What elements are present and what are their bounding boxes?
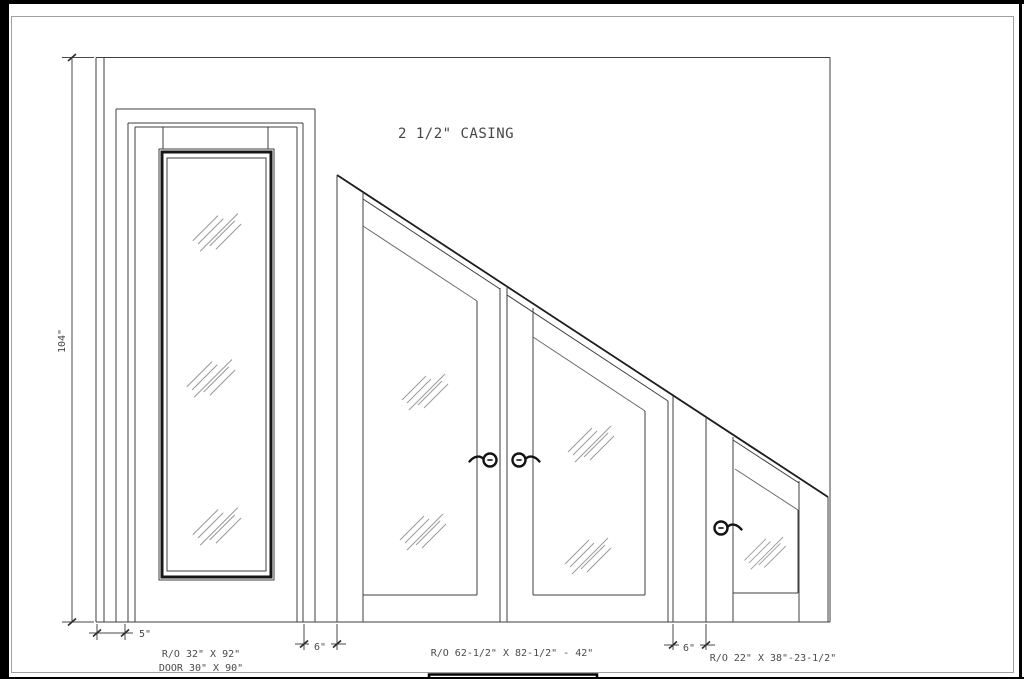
tall-door-size-label: DOOR 30" X 90" xyxy=(159,663,243,674)
small-door-ro-label: R/O 22" X 38"-23-1/2" xyxy=(710,653,836,664)
casing-offset-label: 5" xyxy=(139,629,151,640)
height-dimension: 104" xyxy=(57,54,94,626)
tall-door-glass-panel xyxy=(159,149,274,580)
tall-door-unit xyxy=(116,109,315,622)
small-door-handle xyxy=(715,522,742,535)
tall-door-casing xyxy=(116,109,315,622)
gap-left-label: 6" xyxy=(314,642,326,653)
casing-offset-dimension: 5" xyxy=(89,624,151,640)
elevation-drawing: 104" 5" 6" 6" 2 1/2" CASING R/O 32" X 92… xyxy=(0,0,1024,679)
wall-outline xyxy=(96,58,830,623)
double-door-ro-label: R/O 62-1/2" X 82-1/2" - 42" xyxy=(431,648,594,659)
height-dimension-label: 104" xyxy=(57,329,68,353)
left-leaf-handle xyxy=(470,454,497,467)
page-frame xyxy=(0,0,1024,679)
casing-note: 2 1/2" CASING xyxy=(398,126,514,142)
double-door-unit xyxy=(337,175,673,622)
gap-right-label: 6" xyxy=(683,643,695,654)
tall-door-ro-label: R/O 32" X 92" xyxy=(162,649,240,660)
double-door-left-leaf xyxy=(363,192,500,622)
small-door-unit xyxy=(706,417,828,622)
stair-casing-slope xyxy=(337,175,828,497)
drawing-page: 104" 5" 6" 6" 2 1/2" CASING R/O 32" X 92… xyxy=(0,0,1024,679)
right-leaf-handle xyxy=(513,454,540,467)
double-door-right-leaf xyxy=(507,295,668,622)
gap-left-dimension: 6" xyxy=(295,624,346,653)
gap-right-dimension: 6" xyxy=(664,624,715,654)
